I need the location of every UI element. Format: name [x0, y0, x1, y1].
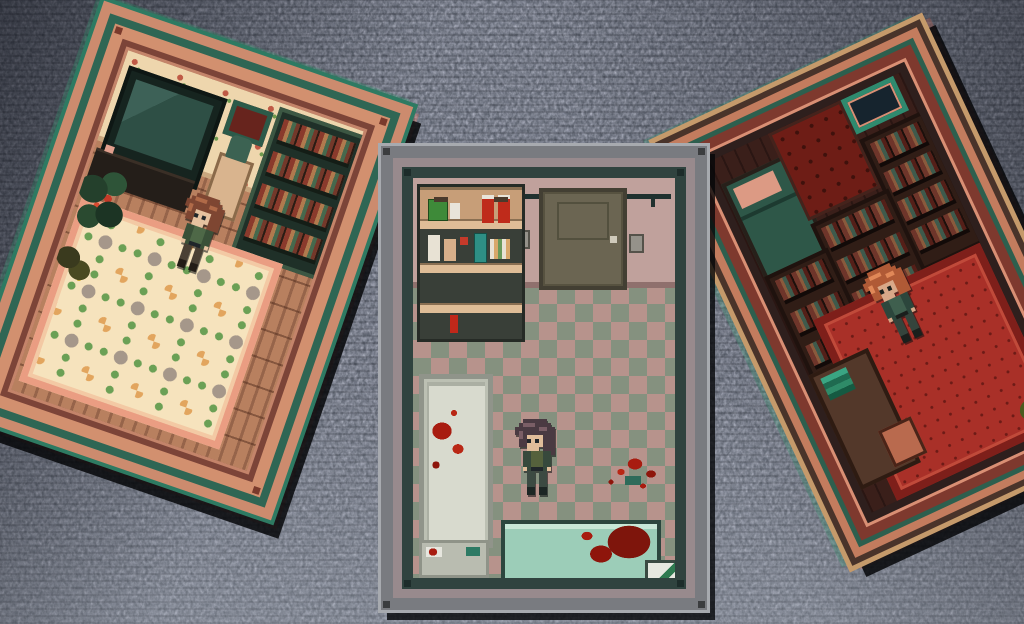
jars	[490, 239, 510, 259]
teal-bottle	[474, 233, 487, 263]
corner-ornament	[379, 117, 388, 126]
blood-stain	[424, 379, 488, 543]
package	[428, 235, 440, 261]
shelf-board	[420, 263, 522, 273]
corner-ornament	[114, 26, 123, 35]
corner-screw	[383, 148, 390, 155]
package	[444, 239, 456, 261]
corner-screw	[404, 580, 411, 587]
tub-step	[419, 540, 489, 578]
corner-screw	[677, 580, 684, 587]
corner-screw	[698, 148, 705, 155]
corner-ornament	[252, 486, 261, 495]
bathroom-interior	[413, 178, 675, 578]
massage-table	[501, 520, 661, 578]
corner-screw	[383, 601, 390, 608]
game-viewport	[0, 0, 1024, 624]
bathtub	[419, 374, 493, 548]
red-can	[482, 195, 494, 223]
supply-shelf	[417, 184, 525, 342]
package	[460, 237, 468, 245]
wall-outlet	[629, 234, 644, 253]
white-can	[450, 203, 460, 219]
character-bathroom[interactable]	[515, 418, 559, 498]
corner-screw	[698, 601, 705, 608]
blood-splatter	[599, 448, 667, 498]
corner-screw	[677, 169, 684, 176]
corner-screw	[404, 169, 411, 176]
green-box	[428, 199, 448, 221]
shelf-board	[420, 303, 522, 313]
door[interactable]	[539, 188, 627, 290]
first-aid-box	[645, 560, 675, 578]
bedroom-interior	[11, 50, 363, 471]
room-panel-bathroom[interactable]	[378, 143, 710, 613]
red-bottle	[450, 315, 458, 333]
